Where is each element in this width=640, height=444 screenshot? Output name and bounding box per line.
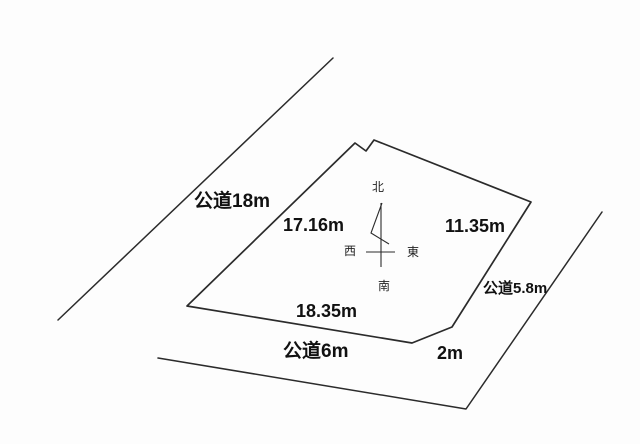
road-east-label: 公道5.8m	[483, 281, 547, 296]
road-south-label: 公道6m	[283, 342, 348, 361]
compass-west-label: 西	[344, 245, 356, 257]
plot-boundary	[187, 140, 531, 343]
edge-corner-cut-label: 2m	[437, 344, 463, 362]
compass-south-label: 南	[378, 280, 390, 292]
road-line-south-east	[158, 212, 602, 409]
compass-north-label: 北	[372, 181, 384, 193]
edge-northwest-label: 17.16m	[283, 216, 344, 234]
edge-northeast-label: 11.35m	[445, 217, 505, 235]
land-plot-diagram: 公道18m 公道6m 公道5.8m 17.16m 11.35m 18.35m 2…	[0, 0, 640, 444]
edge-south-label: 18.35m	[296, 302, 357, 320]
road-line-west	[58, 58, 333, 320]
compass-north-flag	[371, 203, 389, 244]
road-west-label: 公道18m	[194, 192, 270, 211]
compass-needle	[366, 203, 395, 267]
compass-east-label: 東	[407, 246, 419, 258]
